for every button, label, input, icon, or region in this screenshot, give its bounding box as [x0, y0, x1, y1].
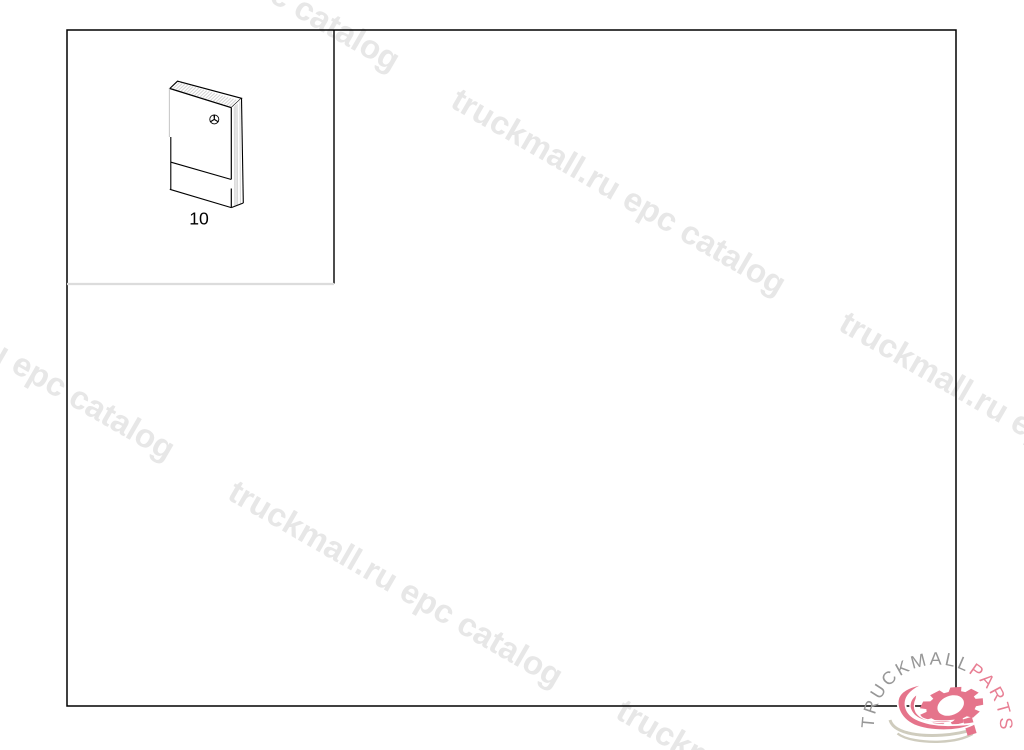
- svg-text:10: 10: [189, 209, 209, 229]
